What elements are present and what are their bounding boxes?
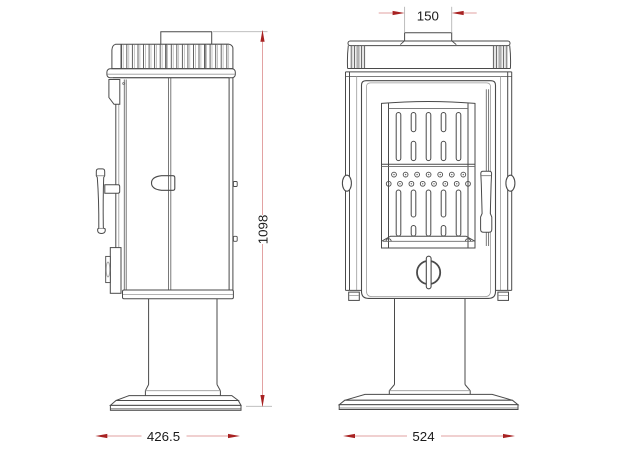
svg-text:524: 524: [412, 429, 434, 444]
svg-text:426.5: 426.5: [147, 429, 180, 444]
svg-text:150: 150: [417, 8, 439, 23]
svg-text:1098: 1098: [256, 215, 271, 245]
